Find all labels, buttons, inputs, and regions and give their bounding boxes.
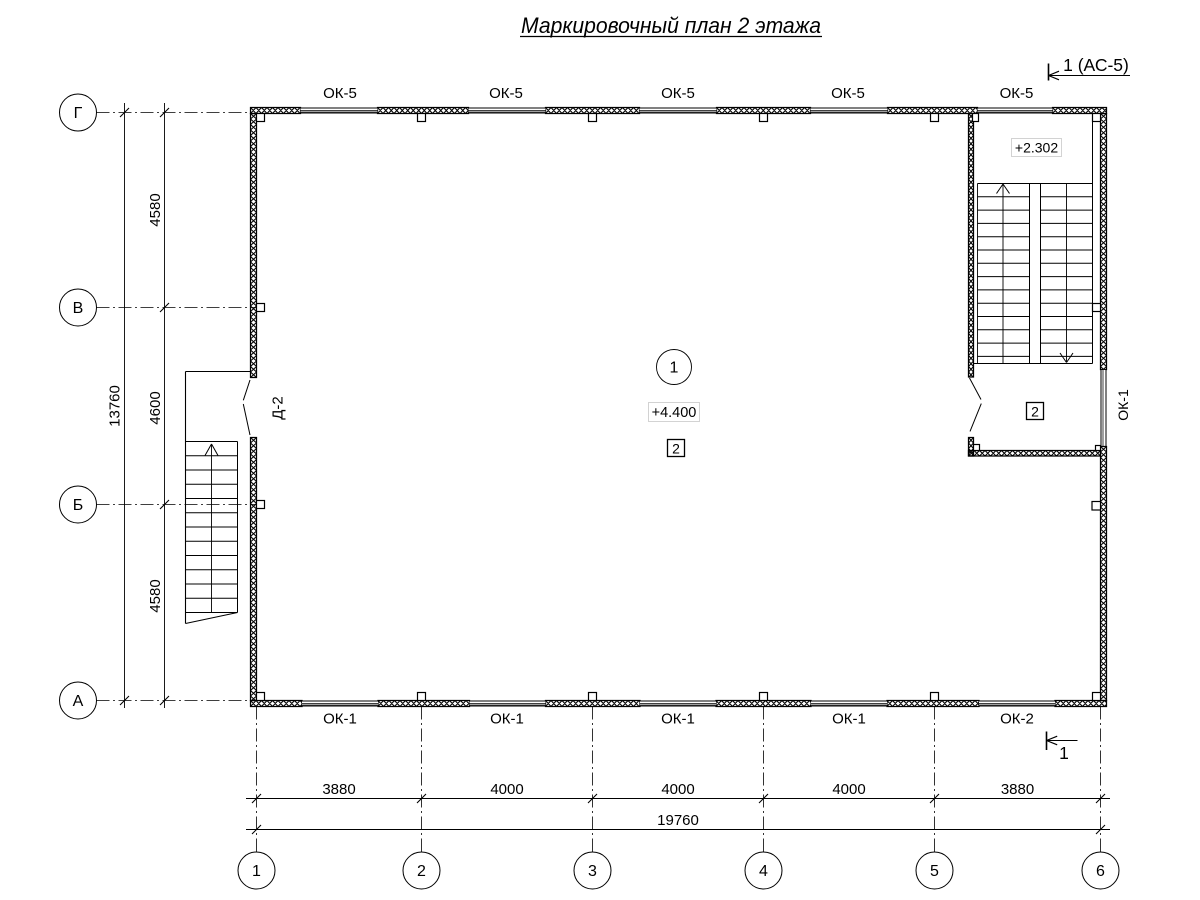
svg-text:Д-2: Д-2 — [270, 396, 287, 420]
svg-text:ОК-5: ОК-5 — [831, 85, 865, 102]
svg-text:1 (АС-5): 1 (АС-5) — [1063, 55, 1129, 75]
svg-text:4: 4 — [759, 863, 768, 880]
svg-text:+4.400: +4.400 — [652, 405, 697, 421]
svg-text:4580: 4580 — [147, 579, 164, 612]
svg-text:4000: 4000 — [661, 781, 694, 798]
svg-text:Маркировочный план 2 этажа: Маркировочный план 2 этажа — [521, 13, 821, 38]
svg-text:ОК-5: ОК-5 — [661, 85, 695, 102]
svg-text:+2.302: +2.302 — [1015, 140, 1058, 156]
svg-text:1: 1 — [1059, 743, 1069, 763]
svg-text:ОК-1: ОК-1 — [1115, 389, 1131, 421]
svg-text:ОК-1: ОК-1 — [490, 711, 524, 728]
svg-text:2: 2 — [1031, 404, 1039, 420]
svg-text:А: А — [73, 693, 84, 710]
svg-text:6: 6 — [1096, 863, 1105, 880]
svg-text:Б: Б — [73, 497, 84, 514]
svg-text:2: 2 — [417, 863, 426, 880]
svg-text:1: 1 — [670, 360, 679, 377]
svg-text:1: 1 — [252, 863, 261, 880]
svg-text:ОК-5: ОК-5 — [489, 85, 523, 102]
svg-text:ОК-1: ОК-1 — [832, 711, 866, 728]
svg-text:13760: 13760 — [107, 385, 124, 427]
svg-text:3: 3 — [588, 863, 597, 880]
svg-text:ОК-1: ОК-1 — [661, 711, 695, 728]
svg-text:2: 2 — [672, 441, 680, 457]
svg-text:3880: 3880 — [322, 781, 355, 798]
svg-text:ОК-1: ОК-1 — [323, 711, 357, 728]
svg-text:3880: 3880 — [1001, 781, 1034, 798]
svg-text:В: В — [73, 300, 84, 317]
svg-text:Г: Г — [74, 105, 83, 122]
svg-text:ОК-2: ОК-2 — [1000, 711, 1034, 728]
svg-text:4580: 4580 — [147, 193, 164, 226]
svg-text:4000: 4000 — [490, 781, 523, 798]
svg-text:4000: 4000 — [832, 781, 865, 798]
svg-text:ОК-5: ОК-5 — [1000, 85, 1034, 102]
svg-text:4600: 4600 — [147, 391, 164, 424]
svg-text:5: 5 — [930, 863, 939, 880]
svg-text:19760: 19760 — [657, 812, 699, 829]
svg-text:ОК-5: ОК-5 — [323, 85, 357, 102]
